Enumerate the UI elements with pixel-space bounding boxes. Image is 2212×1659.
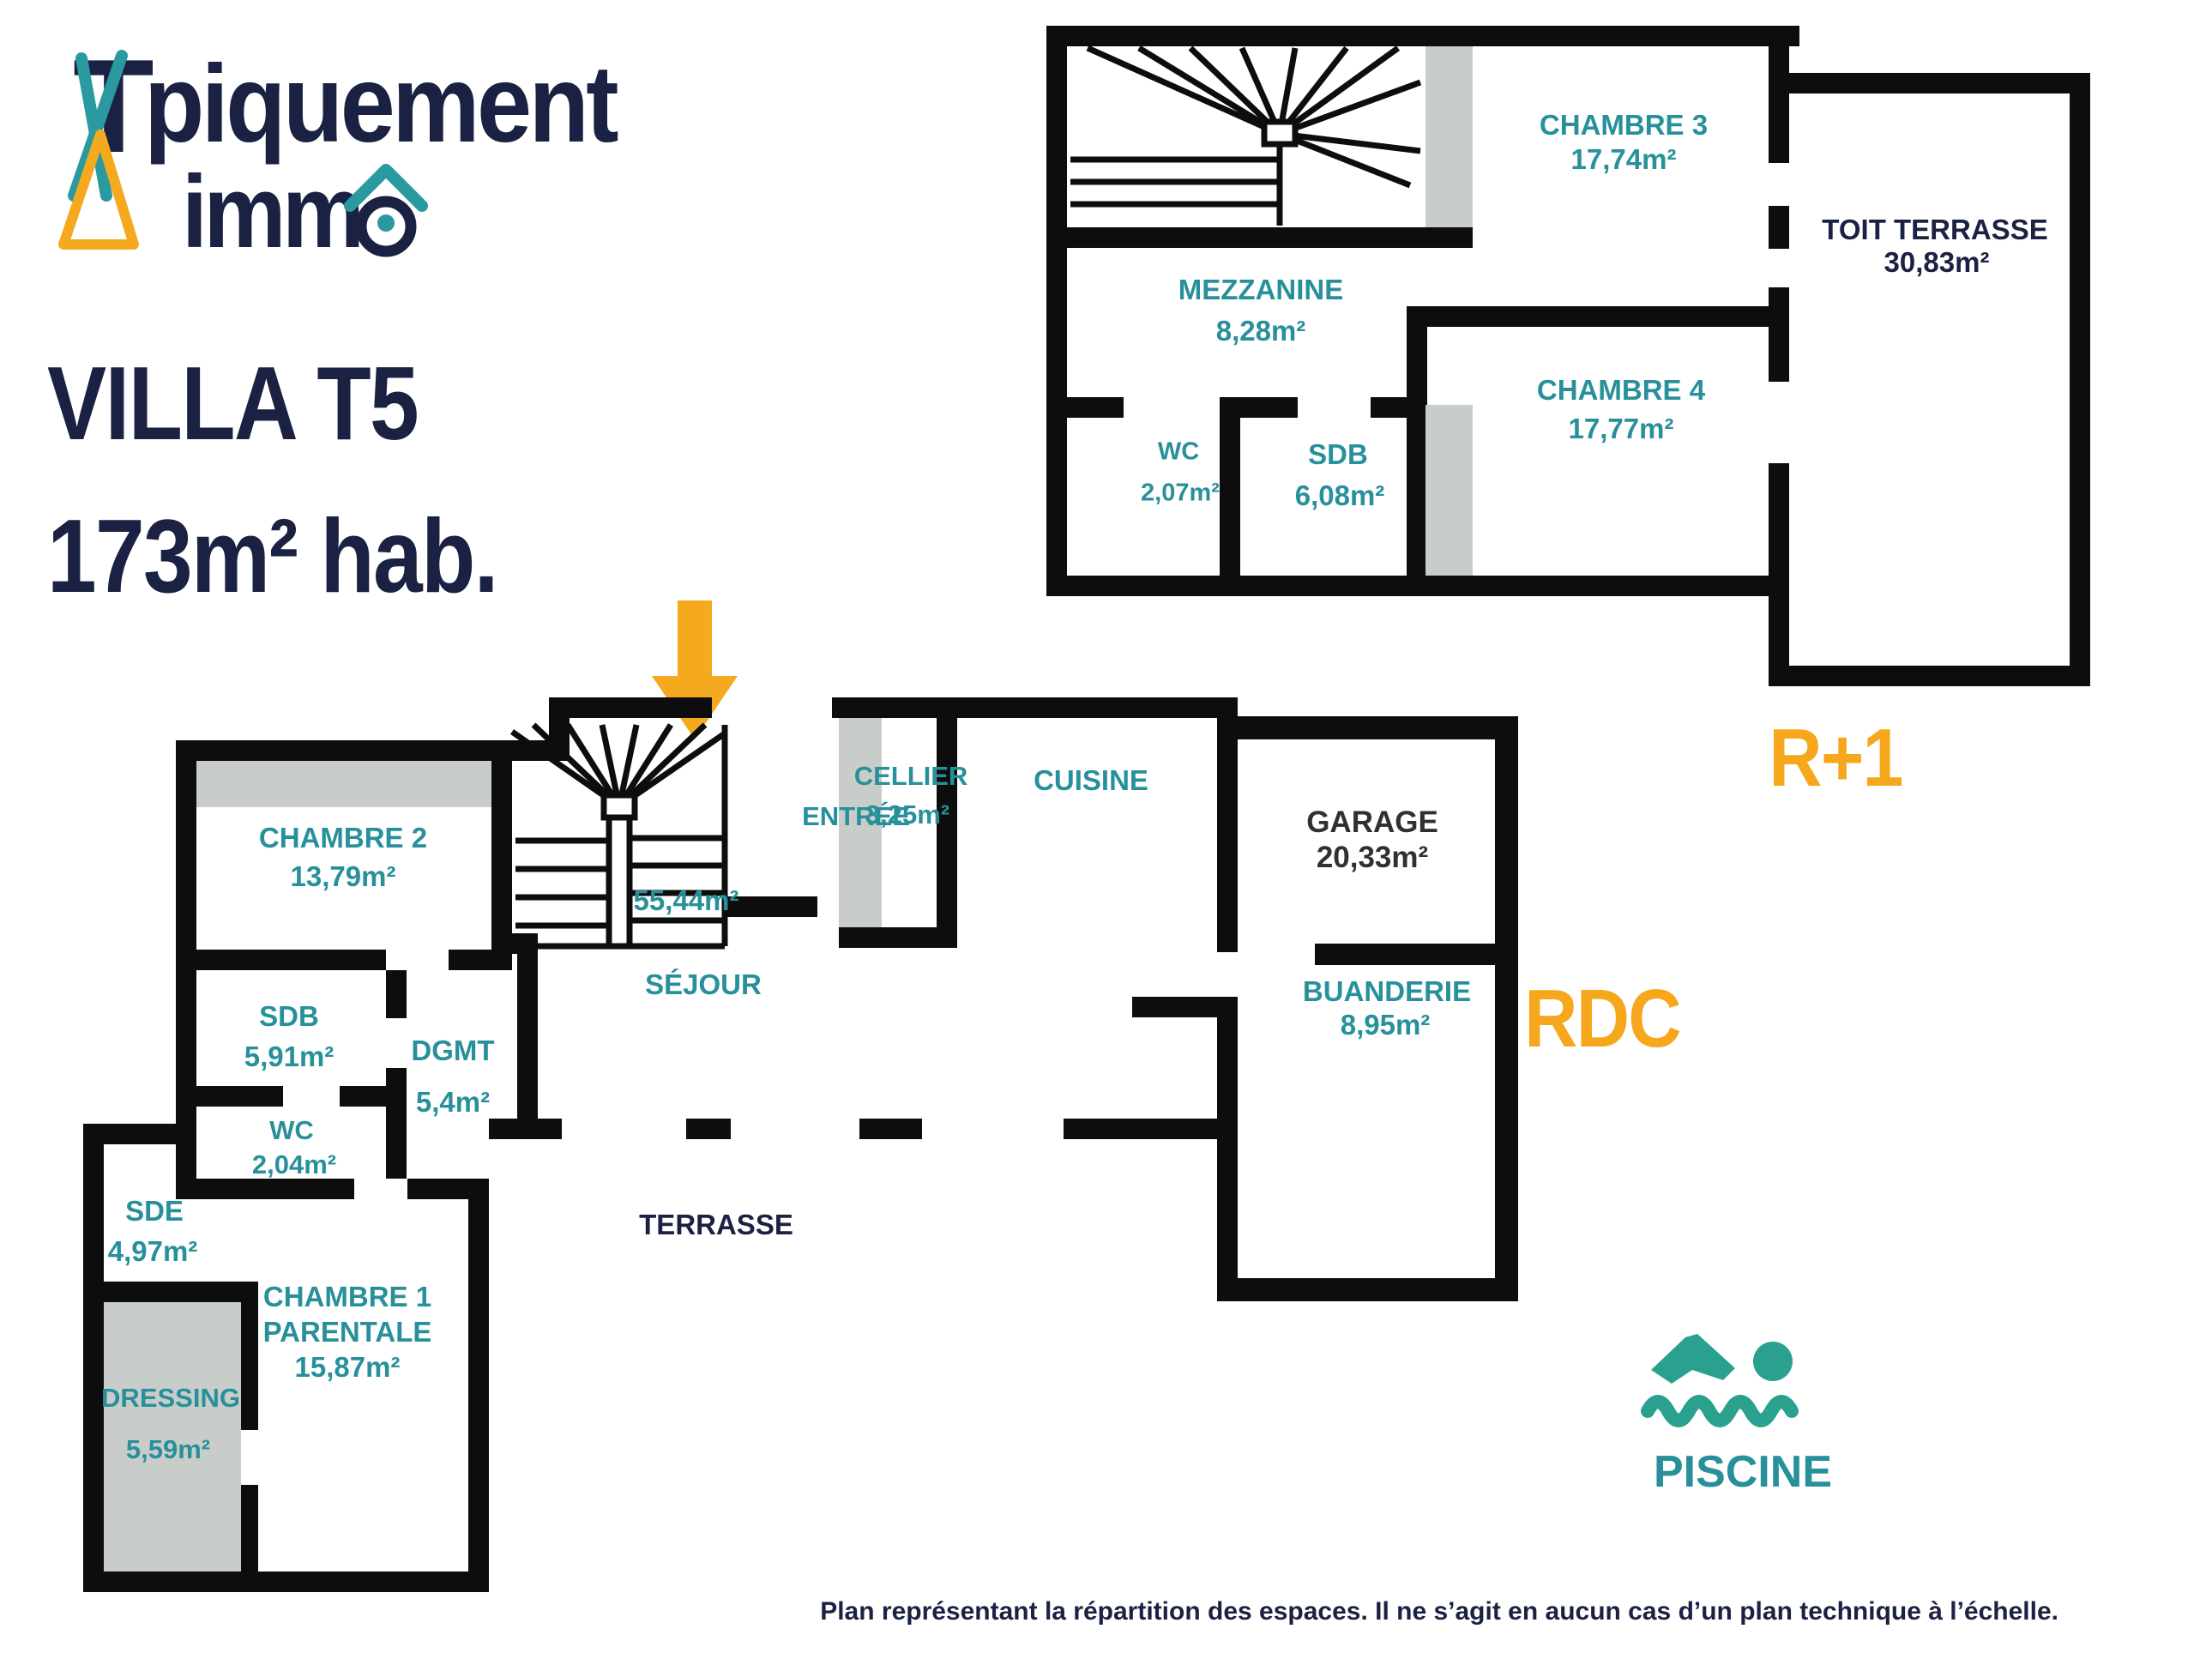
wall-segment: [176, 740, 196, 1124]
wall-segment: [1371, 397, 1417, 418]
wall-segment: [1238, 716, 1518, 739]
wall-segment: [83, 1124, 104, 1592]
wall-segment: [1046, 26, 1799, 46]
logo-word-piquement: piquement: [144, 41, 616, 167]
page-subtitle: 173m² hab.: [47, 496, 497, 616]
floor-tag-r1: R+1: [1769, 711, 1902, 805]
wall-segment: [176, 1124, 196, 1199]
room-label: DRESSING: [101, 1383, 240, 1414]
room-label: PARENTALE: [263, 1316, 432, 1348]
room-area: 2,07m²: [1141, 480, 1220, 508]
wall-segment: [1046, 26, 1067, 596]
wall-segment: [1067, 397, 1124, 418]
room-area: 5,59m²: [126, 1434, 210, 1465]
wall-segment: [83, 1572, 489, 1592]
wall-segment: [196, 1086, 283, 1107]
wall-segment: [1769, 206, 1789, 249]
wall-segment: [1220, 397, 1240, 596]
shaded-partition: [196, 761, 491, 807]
wall-segment: [1769, 463, 1789, 686]
room-label: MEZZANINE: [1178, 274, 1344, 306]
wall-segment: [2070, 73, 2090, 686]
page-title: VILLA T5: [47, 343, 418, 463]
room-label: DGMT: [411, 1035, 494, 1067]
wall-segment: [196, 950, 386, 970]
staircase-r1: [1070, 48, 1422, 226]
room-label: CELLIER: [854, 761, 968, 792]
wall-segment: [340, 1086, 386, 1107]
wall-segment: [859, 1119, 922, 1139]
room-area: 5,4m²: [416, 1086, 490, 1119]
room-label: SDB: [259, 1000, 319, 1033]
room-area: 30,83m²: [1884, 246, 1990, 279]
room-area: 15,87m²: [295, 1351, 401, 1384]
shaded-partition: [1425, 46, 1473, 227]
wall-segment: [489, 1119, 562, 1139]
wall-segment: [1769, 26, 1789, 163]
room-label: CHAMBRE 4: [1537, 374, 1705, 407]
wall-segment: [1769, 666, 2090, 686]
room-area: 5,91m²: [244, 1041, 335, 1073]
room-label: SDB: [1308, 438, 1368, 471]
house-logo-icon: [343, 160, 429, 261]
wall-segment: [1067, 227, 1473, 248]
room-label: WC: [1158, 438, 1199, 467]
wall-segment: [549, 697, 712, 718]
wall-segment: [1217, 697, 1238, 952]
room-label: CHAMBRE 3: [1540, 109, 1708, 142]
wall-segment: [196, 1179, 354, 1199]
wall-segment: [937, 718, 957, 948]
room-label: CHAMBRE 1: [263, 1281, 431, 1313]
wall-segment: [832, 697, 1238, 718]
room-label: GARAGE: [1306, 805, 1438, 840]
room-area: 55,44m²: [634, 884, 739, 917]
room-area: 4,97m²: [108, 1235, 198, 1268]
wall-segment: [1064, 1119, 1217, 1139]
room-area: 3,25m²: [865, 799, 949, 830]
room-label: SÉJOUR: [645, 968, 762, 1001]
room-label: CHAMBRE 2: [259, 822, 427, 854]
room-area: 8,28m²: [1216, 315, 1306, 347]
floor-tag-rdc: RDC: [1524, 972, 1680, 1066]
wall-segment: [1315, 944, 1495, 965]
wall-segment: [839, 927, 957, 948]
shaded-partition: [839, 718, 882, 948]
wall-segment: [1789, 73, 2090, 94]
wall-segment: [386, 1068, 407, 1179]
floor-plan-page: T piquement imm VILLA T5 173m² hab.: [0, 0, 2212, 1659]
wall-segment: [1217, 1278, 1518, 1301]
wall-segment: [1217, 997, 1238, 1301]
room-area: 20,33m²: [1317, 841, 1428, 875]
room-area: 13,79m²: [291, 860, 396, 893]
wall-segment: [491, 761, 512, 950]
shaded-partition: [1425, 405, 1473, 576]
wall-segment: [686, 1119, 731, 1139]
wall-segment: [1495, 716, 1518, 1301]
room-area: 17,74m²: [1571, 143, 1677, 176]
pool-label: PISCINE: [1654, 1446, 1832, 1498]
room-area: 2,04m²: [252, 1149, 336, 1180]
room-area: 6,08m²: [1295, 480, 1385, 512]
room-label: TERRASSE: [639, 1209, 793, 1241]
swimmer-icon: [1642, 1325, 1814, 1437]
disclaimer-text: Plan représentant la répartition des esp…: [820, 1597, 2058, 1626]
wall-segment: [1769, 287, 1789, 382]
wall-segment: [386, 970, 407, 1018]
wall-segment: [468, 1179, 489, 1592]
down-arrow-icon: [648, 600, 742, 742]
room-label: WC: [269, 1115, 314, 1146]
room-area: 8,95m²: [1341, 1009, 1431, 1041]
wall-segment: [726, 896, 817, 917]
wall-segment: [1407, 306, 1427, 596]
wall-segment: [176, 740, 570, 761]
room-label: SDE: [125, 1195, 184, 1228]
wall-segment: [517, 950, 538, 1139]
room-area: 17,77m²: [1569, 413, 1674, 445]
wall-segment: [104, 1282, 258, 1302]
logo-triangle-icon: [50, 123, 146, 253]
room-label: BUANDERIE: [1303, 975, 1471, 1008]
wall-segment: [1407, 306, 1789, 327]
room-label: TOIT TERRASSE: [1822, 214, 2047, 246]
logo-word-immo: imm: [182, 153, 361, 271]
room-label: CUISINE: [1034, 764, 1148, 797]
wall-segment: [1132, 997, 1217, 1017]
